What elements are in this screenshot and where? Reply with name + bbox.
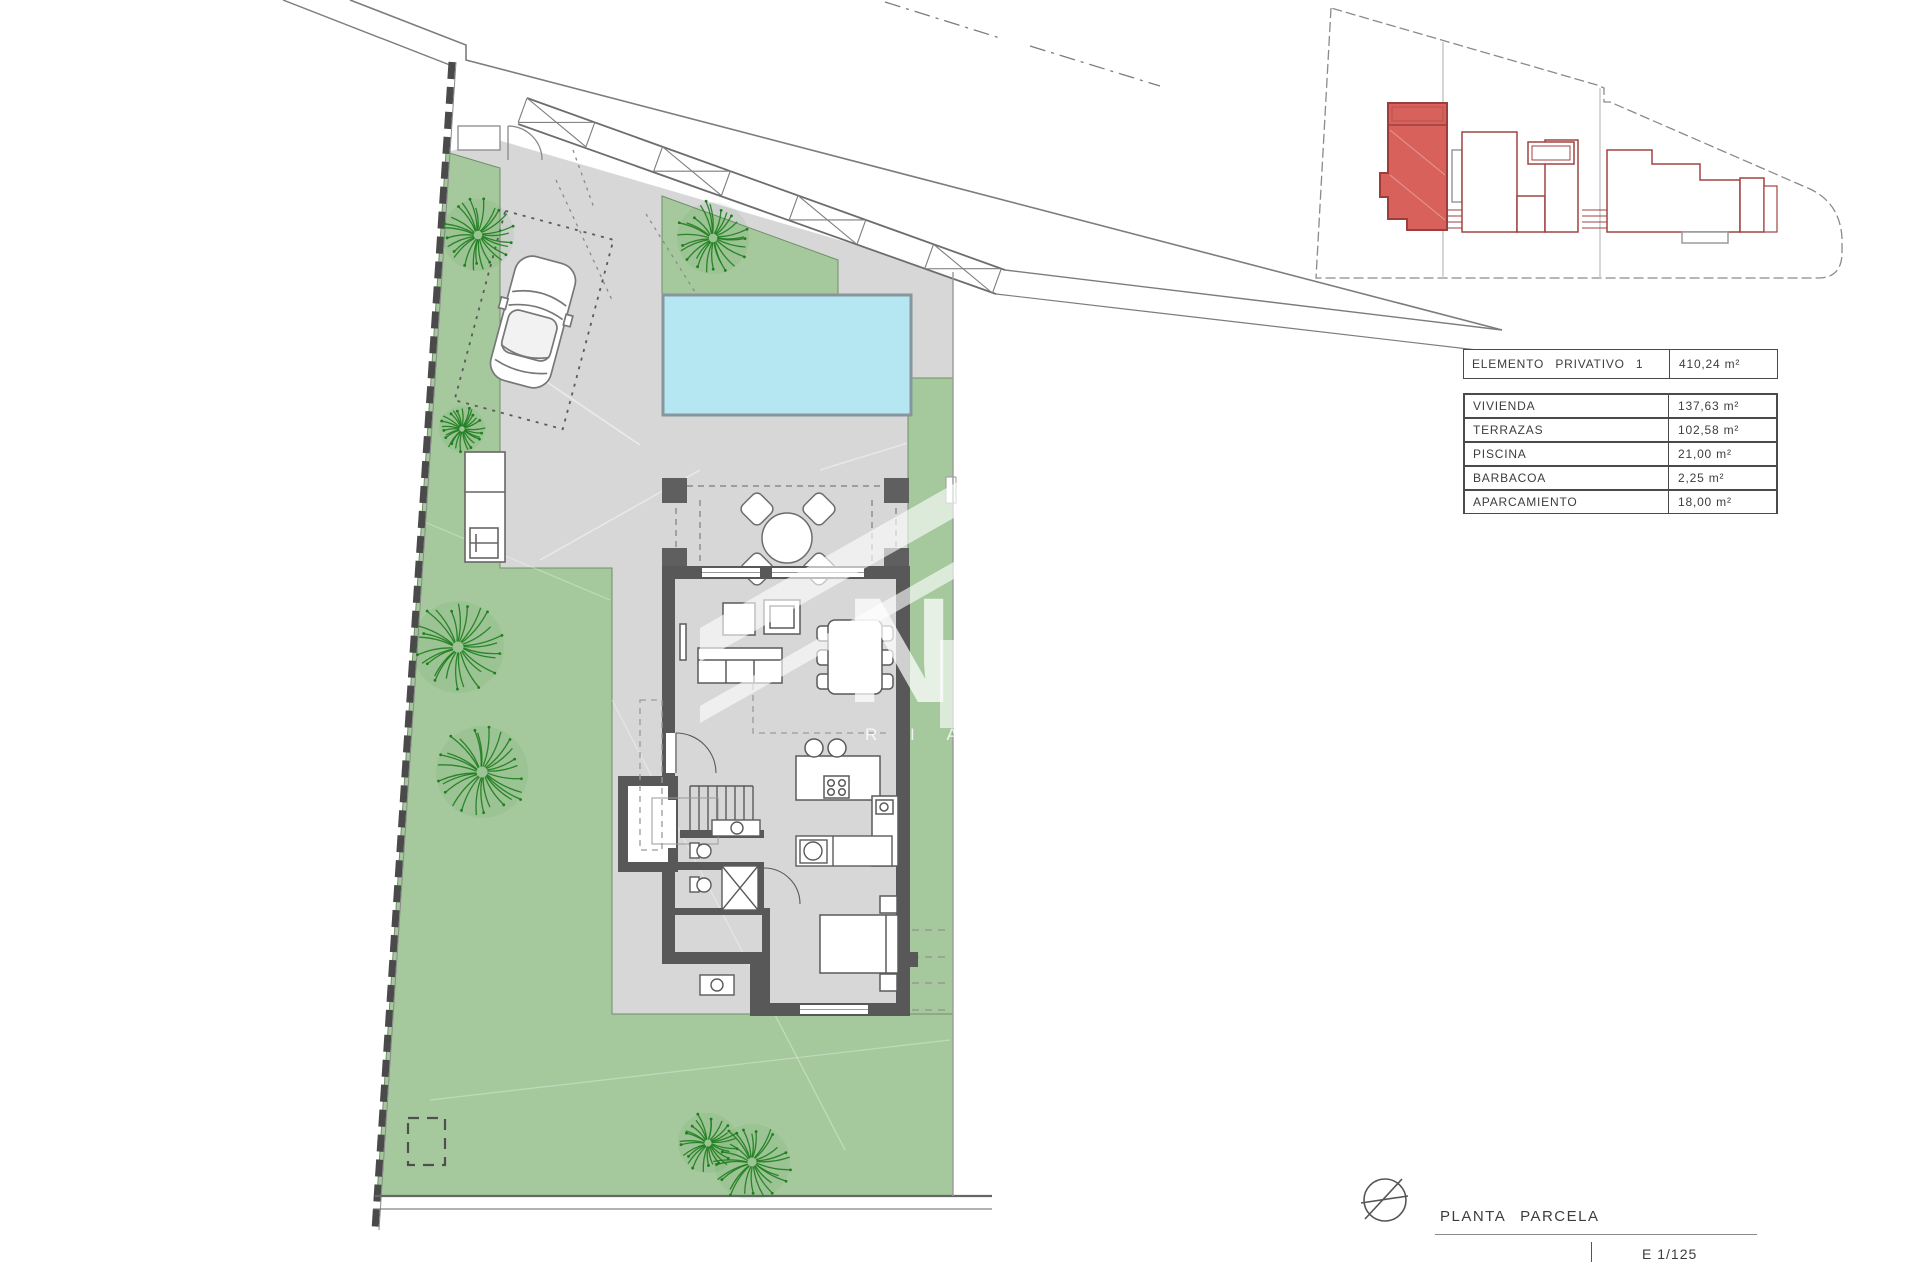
barbecue <box>465 452 505 562</box>
drawing-title: PLANTA PARCELA <box>1440 1208 1600 1225</box>
key-plan <box>1316 8 1842 278</box>
table-row: BARBACOA 2,25 m² <box>1464 466 1777 490</box>
area-table-header-value: 410,24 m² <box>1669 350 1777 378</box>
row-value: 102,58 m² <box>1668 419 1776 441</box>
row-value: 21,00 m² <box>1668 443 1776 465</box>
area-table-header: ELEMENTO PRIVATIVO 1 410,24 m² <box>1463 349 1778 379</box>
title-block: PLANTA PARCELA E 1/125 <box>1340 1160 1780 1270</box>
row-label: BARBACOA <box>1465 467 1668 489</box>
table-row: APARCAMIENTO 18,00 m² <box>1464 490 1777 513</box>
site-plan-drawing <box>0 0 1920 1280</box>
annex <box>618 776 678 872</box>
row-label: APARCAMIENTO <box>1465 491 1668 513</box>
drawing-scale: E 1/125 <box>1642 1246 1697 1262</box>
scale-tick <box>1591 1242 1592 1262</box>
area-table-body: VIVIENDA 137,63 m² TERRAZAS 102,58 m² PI… <box>1463 393 1778 514</box>
area-table: ELEMENTO PRIVATIVO 1 410,24 m² VIVIENDA … <box>1463 349 1778 514</box>
table-row: TERRAZAS 102,58 m² <box>1464 418 1777 442</box>
tree-icon <box>412 601 504 693</box>
table-row: PISCINA 21,00 m² <box>1464 442 1777 466</box>
row-label: TERRAZAS <box>1465 419 1668 441</box>
title-rule <box>1435 1234 1757 1235</box>
row-label: PISCINA <box>1465 443 1668 465</box>
row-label: VIVIENDA <box>1465 395 1668 417</box>
tree-icon <box>436 726 528 818</box>
swimming-pool <box>663 295 911 415</box>
plot-boundary-bottom <box>373 1196 992 1209</box>
area-table-header-label: ELEMENTO PRIVATIVO 1 <box>1464 350 1669 378</box>
closet <box>796 836 892 866</box>
table-row: VIVIENDA 137,63 m² <box>1464 394 1777 418</box>
row-value: 2,25 m² <box>1668 467 1776 489</box>
row-value: 18,00 m² <box>1668 491 1776 513</box>
compass-icon <box>1355 1170 1415 1230</box>
floor-plan-sheet: N R I A ELEMENTO PRIVATIVO 1 410,24 m² V… <box>0 0 1920 1280</box>
key-plan-unit-2 <box>1452 132 1607 232</box>
row-value: 137,63 m² <box>1668 395 1776 417</box>
